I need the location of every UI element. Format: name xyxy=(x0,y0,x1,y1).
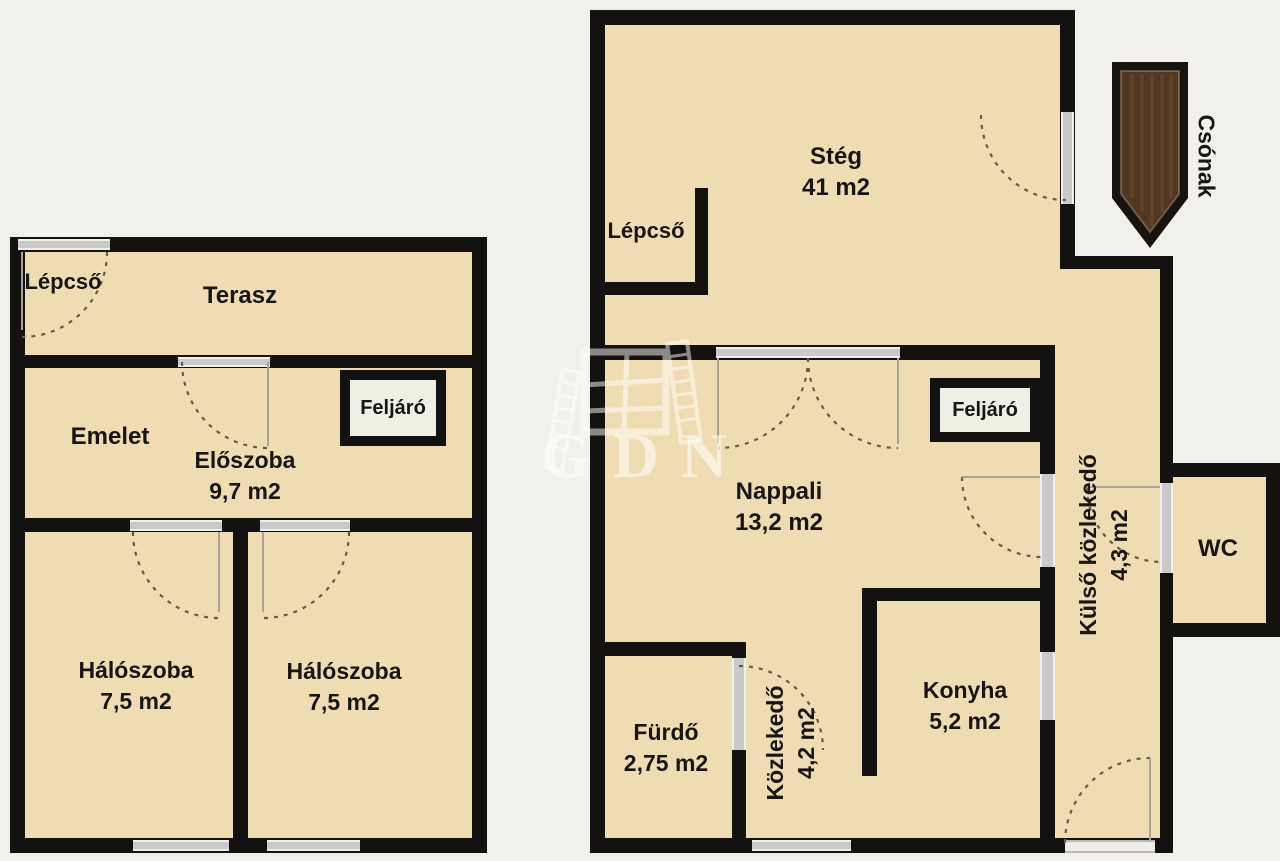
room-area: 13,2 m2 xyxy=(735,507,823,538)
room-label-eloszoba: Előszoba 9,7 m2 xyxy=(195,445,296,507)
room-label-emelet: Emelet xyxy=(71,423,150,451)
room-label-haloszoba-1: Hálószoba 7,5 m2 xyxy=(78,655,193,717)
room-label-lepcso-right: Lépcső xyxy=(607,218,684,244)
room-label-lepcso-left: Lépcső xyxy=(24,269,101,295)
feljaro-box-right: Feljáró xyxy=(930,378,1040,442)
room-label-terasz: Terasz xyxy=(203,282,277,310)
room-label-haloszoba-2: Hálószoba 7,5 m2 xyxy=(286,656,401,718)
feljaro-box-left: Feljáró xyxy=(340,370,446,446)
room-label-feljaro-left: Feljáró xyxy=(360,397,426,420)
room-area: 2,75 m2 xyxy=(624,748,708,779)
door-arc xyxy=(808,358,898,448)
room-label-kozlekedo: Közlekedő 4,2 m2 xyxy=(760,685,822,800)
room-area: 4,2 m2 xyxy=(791,707,822,779)
room-label-kulso-kozlekedo: Külső közlekedő 4,3 m2 xyxy=(1073,454,1135,635)
room-area: 5,2 m2 xyxy=(929,706,1001,737)
door-arc xyxy=(182,362,268,448)
room-label-feljaro-right: Feljáró xyxy=(952,399,1018,422)
boat-label: Csónak xyxy=(1193,114,1220,197)
boat-icon xyxy=(1112,62,1188,248)
room-label-wc: WC xyxy=(1198,535,1238,563)
room-label-furdo: Fürdő 2,75 m2 xyxy=(624,717,708,779)
door-arc xyxy=(1065,758,1150,843)
floorplan-canvas: Feljáró Feljáró Lépcső Terasz Emelet Elő… xyxy=(0,0,1280,861)
door-arc xyxy=(133,532,219,618)
room-label-konyha: Konyha 5,2 m2 xyxy=(923,675,1007,737)
room-area: 41 m2 xyxy=(802,172,870,203)
door-arc xyxy=(981,115,1066,200)
watermark-text: GDN xyxy=(541,419,749,493)
room-area: 4,3 m2 xyxy=(1104,509,1135,581)
room-area: 7,5 m2 xyxy=(308,687,380,718)
door-arc xyxy=(962,477,1042,557)
room-area: 7,5 m2 xyxy=(100,686,172,717)
room-label-steg: Stég 41 m2 xyxy=(802,141,870,203)
door-arc xyxy=(263,532,349,618)
room-area: 9,7 m2 xyxy=(209,476,281,507)
